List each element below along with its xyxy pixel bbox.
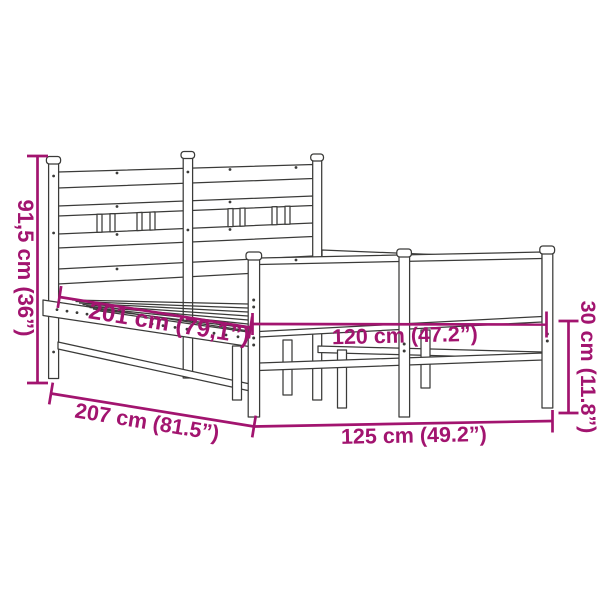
headboard-near-post [49,164,59,379]
headboard-center-post [183,158,192,378]
dimension-label-headboard-height: 91,5 cm (36”) [13,200,38,337]
footboard-near-post-cap [246,252,262,260]
near-lengthwise-stretcher [58,342,250,391]
footboard-center-post-cap [397,249,412,257]
dimension-label-total-width: 125 cm (49.2”) [341,422,487,449]
headboard-near-post-cap [46,157,60,165]
footboard-far-post-cap [540,246,555,254]
headboard-far-post-cap [311,154,324,161]
dimension-label-slat-width: 120 cm (47.2”) [332,322,478,350]
bed-frame-dimension-diagram: 91,5 cm (36”) 201 cm (79,1”) 207 cm (81.… [0,0,600,600]
diagram-canvas: 91,5 cm (36”) 201 cm (79,1”) 207 cm (81.… [0,0,600,600]
dimension-label-footboard-height: 30 cm (11.8”) [576,301,600,434]
dimension-label-total-length: 207 cm (81.5”) [73,399,221,446]
headboard-center-post-cap [181,152,195,159]
